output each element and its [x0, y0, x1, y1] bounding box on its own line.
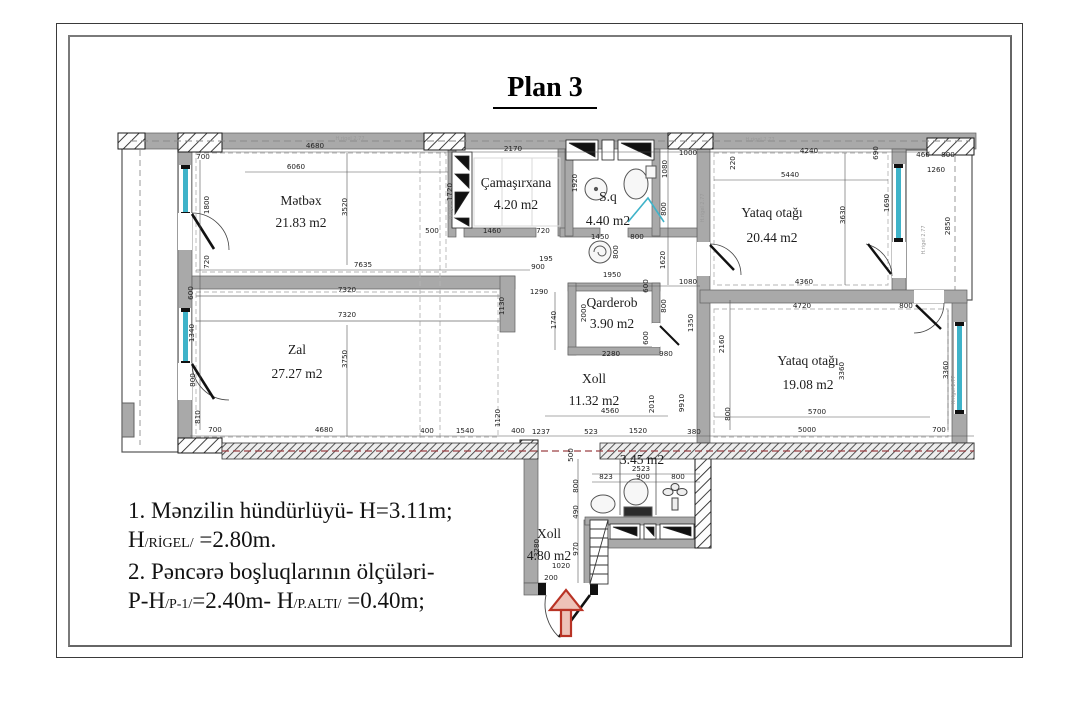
room-name: S.q	[599, 189, 617, 204]
dimension-label: 2160	[717, 334, 726, 353]
door-qarderob	[660, 326, 679, 345]
dimension-label: 823	[599, 472, 613, 481]
dimension-label: 700	[208, 425, 222, 434]
dimension-label: 1237	[532, 427, 550, 436]
dimension-label: 460	[916, 150, 930, 159]
dimension-label: 500	[566, 448, 575, 462]
wall-note: H.rigel 2.77	[921, 225, 927, 254]
room-name: Zal	[288, 342, 306, 357]
dimension-label: 690	[871, 146, 880, 160]
wall-note: H.rigel 2.77	[700, 193, 706, 222]
left-balcony	[122, 140, 178, 452]
dimension-label: 2010	[647, 394, 656, 413]
dimension-label: 4680	[315, 425, 334, 434]
dimension-label: 1920	[570, 173, 579, 192]
dimension-label: 600	[641, 331, 650, 345]
dimension-label: 800	[611, 245, 620, 259]
dimension-label: 7320	[338, 285, 357, 294]
dimension-label: 600	[186, 286, 195, 300]
dimension-label: 1740	[549, 310, 558, 329]
sink-icon	[591, 495, 615, 513]
dimension-label: 1020	[552, 561, 571, 570]
dimension-label: 900	[531, 262, 545, 271]
note-line-3: 2. Pəncərə boşluqlarının ölçüləri-	[128, 558, 548, 587]
door-kitchen	[192, 214, 214, 249]
dimension-label: 1340	[187, 323, 196, 342]
dimension-label: 980	[659, 349, 673, 358]
dimension-label: 1260	[927, 165, 946, 174]
dimension-label: 220	[728, 156, 737, 170]
dimension-label: 523	[584, 427, 598, 436]
toilet-icon	[624, 169, 648, 199]
dimension-label: 1450	[591, 232, 610, 241]
dimension-label: 700	[196, 152, 210, 161]
plant-icon	[663, 484, 687, 511]
room-area: 4.20 m2	[494, 197, 538, 212]
window-bedroom2	[957, 326, 962, 411]
dimension-label: 3360	[837, 361, 846, 380]
notes-block: 1. Mənzilin hündürlüyü- H=3.11m; H/RİGEL…	[128, 497, 548, 619]
stairs-shaft	[590, 520, 608, 584]
dimension-label: 4560	[601, 406, 620, 415]
dimension-label: 5440	[781, 170, 800, 179]
dimension-label: 4680	[306, 141, 325, 150]
wall-note: H.rigel 2.77	[745, 137, 774, 143]
room-name: Xoll	[582, 371, 606, 386]
dimension-label: 1000	[679, 148, 698, 157]
dimension-label: 810	[193, 410, 202, 424]
dimension-label: 970	[571, 542, 580, 556]
dimension-label: 2000	[579, 303, 588, 322]
dimension-label: 3750	[340, 349, 349, 368]
dimension-label: 5000	[798, 425, 817, 434]
dimension-label: 3360	[941, 360, 950, 379]
dimension-label: 1520	[629, 426, 648, 435]
dimension-label: 800	[899, 301, 913, 310]
dimension-label: 3520	[340, 197, 349, 216]
wall-columns	[118, 133, 974, 548]
note-line-4: P-H/P-1/=2.40m- H/P.ALTI/ =0.40m;	[128, 587, 548, 620]
dimension-label: 800	[188, 373, 197, 387]
dimension-label: 1620	[658, 250, 667, 269]
dimension-label: 1800	[202, 195, 211, 214]
dimension-label: 800	[941, 150, 955, 159]
note-line-2: H/RİGEL/ =2.80m.	[128, 526, 548, 559]
room-name: Mətbəx	[280, 193, 321, 208]
room-area: 4.40 m2	[586, 213, 630, 228]
dimension-label: 700	[932, 425, 946, 434]
dimension-label: 7320	[338, 310, 357, 319]
wall-note: H.rigel 2.77	[335, 136, 364, 142]
dimension-label: 500	[425, 226, 439, 235]
room-area: 19.08 m2	[782, 377, 833, 392]
dimension-label: 490	[571, 505, 580, 519]
dimension-label: 1290	[530, 287, 549, 296]
dimension-label: 1690	[882, 193, 891, 212]
window-kitchen	[183, 168, 188, 213]
dimension-label: 400	[511, 426, 525, 435]
dimension-label: 600	[641, 279, 650, 293]
dimension-label: 6060	[287, 162, 306, 171]
dimension-label: 720	[536, 226, 550, 235]
room-area: 27.27 m2	[271, 366, 322, 381]
room-name: Qarderob	[587, 295, 638, 310]
dimension-label: 4720	[793, 301, 812, 310]
window-bedroom1	[896, 167, 901, 239]
dimension-label: 1460	[483, 226, 502, 235]
wall-note: H.rigel 2.77	[448, 190, 454, 219]
dimension-label: 1080	[660, 159, 669, 178]
dimension-label: 4360	[795, 277, 814, 286]
dimension-label: 800	[659, 202, 668, 216]
room-name: Çamaşırxana	[481, 175, 551, 190]
dimension-label: 3630	[838, 205, 847, 224]
dimension-label: 800	[630, 232, 644, 241]
dimension-label: 1350	[686, 313, 695, 332]
dimension-label: 1540	[456, 426, 475, 435]
dimension-label: 5700	[808, 407, 827, 416]
door-bedroom2	[916, 305, 941, 329]
dimension-label: 800	[659, 299, 668, 313]
dimension-label: 1950	[603, 270, 622, 279]
dimension-label: 2170	[504, 144, 523, 153]
dimension-label: 800	[571, 479, 580, 493]
room-name: Yataq otağı	[741, 205, 803, 220]
wall-note: H.rigel 2.77	[951, 375, 957, 404]
room-area: 20.44 m2	[746, 230, 797, 245]
dimension-label: 1120	[493, 408, 502, 427]
dimension-label: 2850	[943, 216, 952, 235]
dimension-label: 720	[202, 255, 211, 269]
dimension-label: 4240	[800, 146, 819, 155]
dimension-label: 800	[671, 472, 685, 481]
dimension-label: 900	[636, 472, 650, 481]
dimension-label: 400	[420, 426, 434, 435]
page: Plan 3	[0, 0, 1080, 708]
toilet2-icon	[624, 479, 648, 505]
drain-icon	[589, 241, 611, 263]
dimension-label: 1080	[679, 277, 698, 286]
dimension-label: 2280	[602, 349, 621, 358]
dimension-label: 1130	[497, 296, 506, 315]
dimension-label: 800	[723, 407, 732, 421]
room-area: 3.90 m2	[590, 316, 634, 331]
room-area: 21.83 m2	[275, 215, 326, 230]
dimension-label: 9910	[677, 393, 686, 412]
room-name: Yataq otağı	[777, 353, 839, 368]
note-line-1: 1. Mənzilin hündürlüyü- H=3.11m;	[128, 497, 548, 526]
dimension-label: 7635	[354, 260, 372, 269]
dimension-label: 380	[687, 427, 701, 436]
